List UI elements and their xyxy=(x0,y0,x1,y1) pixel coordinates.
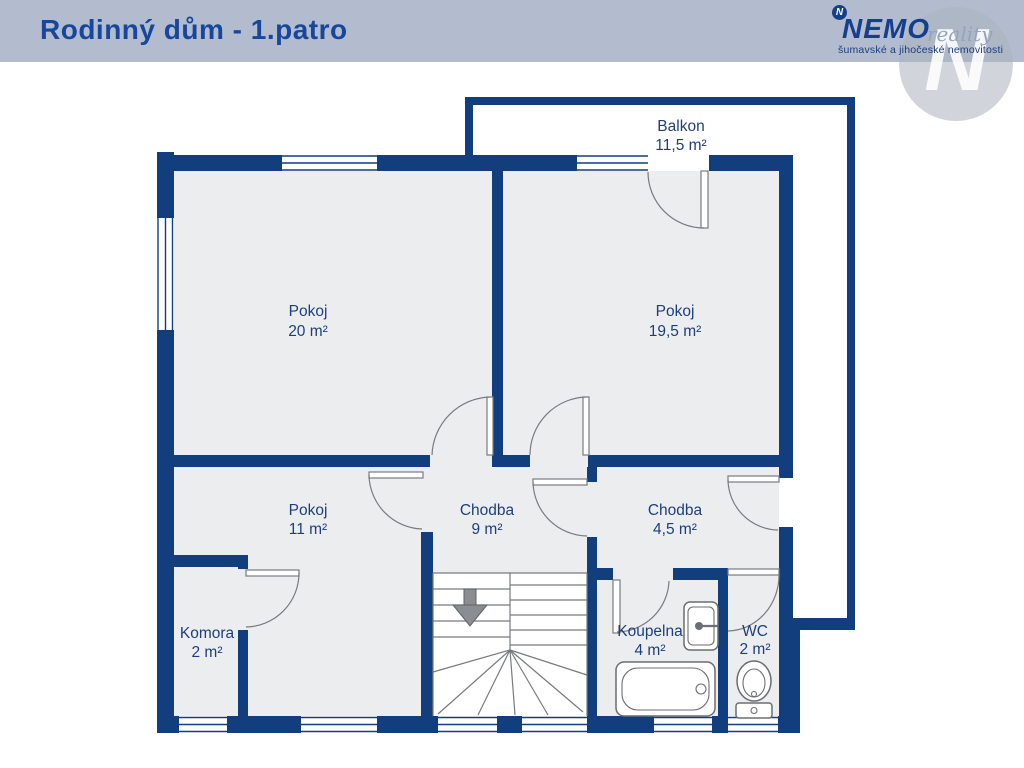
room-area-pokoj-11: 11 m² xyxy=(289,521,327,538)
room-area-pokoj-20: 20 m² xyxy=(288,323,328,340)
room-label-koupelna: Koupelna xyxy=(617,623,683,640)
komora-right-wall-top xyxy=(238,555,248,569)
room-area-koupelna: 4 m² xyxy=(635,642,666,659)
window-pokoj195-top xyxy=(577,155,648,171)
room-area-komora: 2 m² xyxy=(192,644,223,661)
room-label-balkon: Balkon xyxy=(657,118,704,135)
wall-pokoj20-pokoj195 xyxy=(492,171,503,467)
wall-chodba-divider-top xyxy=(587,467,597,482)
logo-brand-text: NEMO xyxy=(842,13,930,45)
koupelna-top-wall-right xyxy=(673,568,723,580)
room-label-komora: Komora xyxy=(180,625,235,642)
window-stairs-bottom-left xyxy=(438,716,497,733)
koupelna-top-wall-left xyxy=(597,568,613,580)
room-area-wc: 2 m² xyxy=(740,641,771,658)
right-outer-wall-lower xyxy=(779,618,800,733)
wall-pokoj11-chodba xyxy=(421,532,433,716)
right-outer-wall-mid xyxy=(779,527,793,618)
room-area-chodba-9: 9 m² xyxy=(472,521,503,538)
wall-mid-center xyxy=(492,455,530,467)
logo-reality-text: reality xyxy=(927,22,992,46)
room-label-wc: WC xyxy=(742,623,768,640)
room-area-balkon: 11,5 m² xyxy=(655,137,706,154)
room-label-pokoj-11: Pokoj xyxy=(289,502,328,519)
nemo-reality-logo: N NEMO reality šumavské a jihočeské nemo… xyxy=(820,2,1000,60)
room-label-pokoj-20: Pokoj xyxy=(289,303,328,320)
window-koupelna-bottom xyxy=(654,716,712,733)
wall-mid-right xyxy=(588,455,779,467)
window-pokoj20-left xyxy=(157,218,174,330)
window-pokoj11-bottom xyxy=(301,716,377,733)
window-pokoj20-top xyxy=(282,155,377,171)
balcony-door-opening xyxy=(648,155,709,171)
wall-stairs-koupelna xyxy=(587,537,597,716)
room-area-chodba-4-5: 4,5 m² xyxy=(653,521,697,538)
floor-plan-page: Rodinný dům - 1.patro N N NEMO reality š… xyxy=(0,0,1024,768)
room-label-pokoj-19-5: Pokoj xyxy=(656,303,695,320)
window-komora-bottom xyxy=(179,716,227,733)
toilet-icon xyxy=(736,661,772,718)
wall-mid-left xyxy=(174,455,430,467)
right-outer-wall-upper xyxy=(779,155,793,478)
floor-plan-drawing: Balkon 11,5 m² Pokoj 20 m² Pokoj 19,5 m²… xyxy=(0,0,1024,768)
komora-right-wall-bottom xyxy=(238,630,248,716)
room-area-pokoj-19-5: 19,5 m² xyxy=(649,323,702,340)
bathtub-icon xyxy=(616,662,715,716)
window-stairs-bottom-right xyxy=(522,716,587,733)
sink-icon xyxy=(684,602,718,650)
room-label-chodba-9: Chodba xyxy=(460,502,515,519)
terrace-strip-floor xyxy=(793,155,847,618)
room-label-chodba-4-5: Chodba xyxy=(648,502,703,519)
logo-tagline: šumavské a jihočeské nemovitosti xyxy=(838,44,1000,56)
balcony-top-wall xyxy=(465,97,855,105)
wall-koupelna-wc xyxy=(718,568,728,716)
komora-top-wall xyxy=(174,555,248,567)
balcony-right-wall xyxy=(847,97,855,630)
